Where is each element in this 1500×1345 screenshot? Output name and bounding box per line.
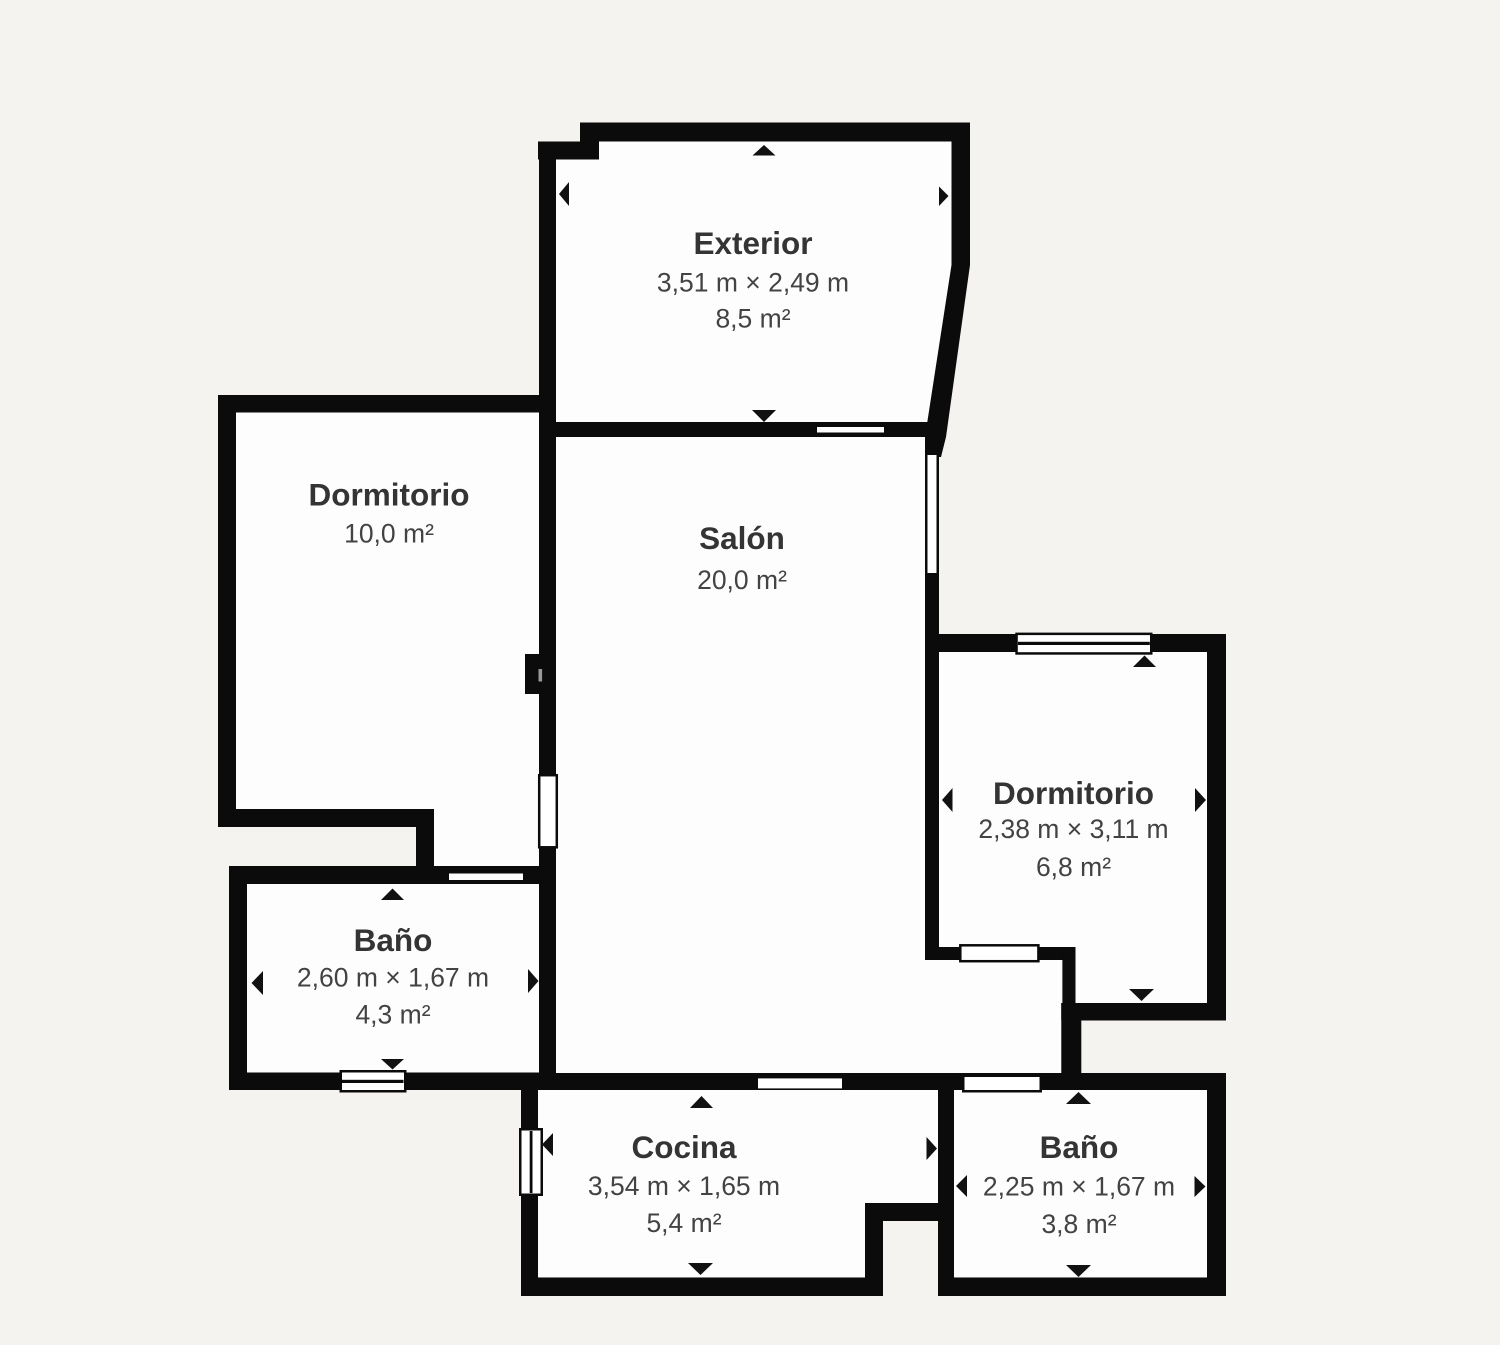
svg-text:Baño: Baño xyxy=(354,922,433,958)
svg-text:10,0 m²: 10,0 m² xyxy=(344,519,434,549)
svg-text:5,4 m²: 5,4 m² xyxy=(646,1208,721,1238)
svg-text:6,8 m²: 6,8 m² xyxy=(1036,852,1111,882)
svg-text:Salón: Salón xyxy=(699,520,785,556)
svg-text:20,0 m²: 20,0 m² xyxy=(697,565,787,595)
svg-text:2,60 m × 1,67 m: 2,60 m × 1,67 m xyxy=(297,963,489,993)
svg-text:Baño: Baño xyxy=(1040,1129,1119,1165)
svg-text:2,38 m × 3,11 m: 2,38 m × 3,11 m xyxy=(978,814,1168,844)
svg-text:3,51 m × 2,49 m: 3,51 m × 2,49 m xyxy=(657,268,849,298)
svg-text:Cocina: Cocina xyxy=(631,1129,737,1165)
svg-text:Dormitorio: Dormitorio xyxy=(993,775,1154,811)
svg-text:Exterior: Exterior xyxy=(693,225,812,261)
svg-text:8,5 m²: 8,5 m² xyxy=(715,304,790,334)
svg-text:Dormitorio: Dormitorio xyxy=(309,477,470,513)
svg-text:3,8 m²: 3,8 m² xyxy=(1041,1209,1116,1239)
svg-text:3,54 m × 1,65 m: 3,54 m × 1,65 m xyxy=(588,1171,780,1201)
svg-text:4,3 m²: 4,3 m² xyxy=(355,1000,430,1030)
svg-text:2,25 m × 1,67 m: 2,25 m × 1,67 m xyxy=(983,1172,1175,1202)
